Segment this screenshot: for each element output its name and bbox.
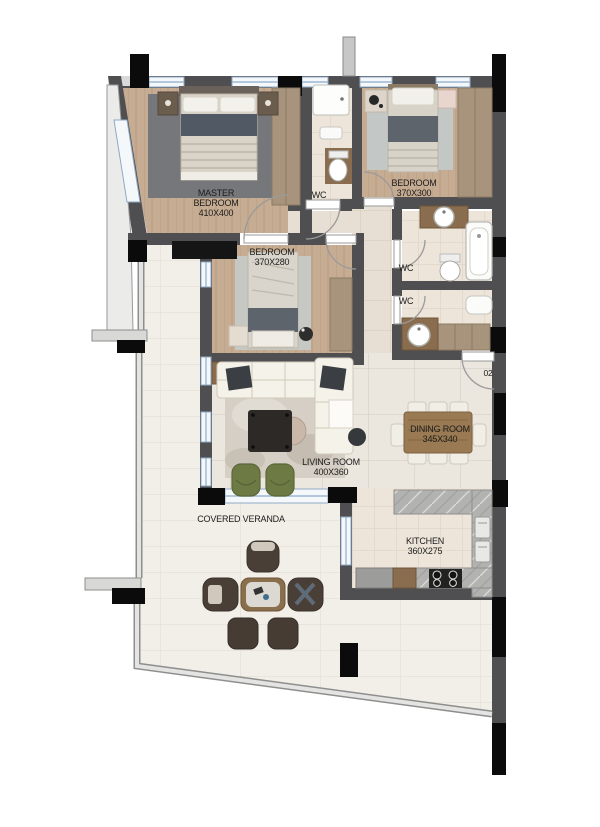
- label-unit-number: 02: [483, 368, 492, 378]
- wall-bath-west-a: [392, 209, 402, 240]
- sofa-pillow-right: [320, 365, 347, 390]
- sink-lower: [408, 324, 430, 346]
- tv-unit-block: [172, 241, 237, 259]
- master-door-leaf: [244, 235, 288, 243]
- wc-shelf: [320, 127, 342, 139]
- floor-lamp: [348, 428, 366, 446]
- label-covered-veranda: COVERED VERANDA: [197, 514, 285, 524]
- entrance-closet: [438, 324, 490, 350]
- bedroom2-door-leaf: [364, 198, 394, 206]
- wall-wc-divider: [402, 281, 492, 290]
- corridor-floor-a: [288, 211, 352, 233]
- wall-bedroom3-east: [352, 245, 364, 365]
- wall-bedroom2-south-a: [352, 197, 364, 209]
- kitchen-cabinet-gray: [356, 568, 393, 588]
- wc-top-door-leaf: [306, 200, 340, 209]
- coffee-table: [248, 410, 292, 452]
- label-wc-top: WC: [312, 190, 327, 200]
- label-kitchen: KITCHEN 360X275: [406, 536, 444, 556]
- label-master-bedroom: MASTER BEDROOM 410X400: [184, 188, 248, 218]
- party-wall-stub: [343, 37, 355, 76]
- stove: [429, 569, 462, 588]
- floor-plan-page: MASTER BEDROOM 410X400 WC BEDROOM 370X30…: [0, 0, 600, 827]
- entrance-door-leaf: [462, 352, 494, 361]
- wall-master-east: [300, 88, 312, 233]
- sofa-tray-table: [329, 400, 353, 428]
- toilet-top: [329, 159, 347, 181]
- label-living-room: LIVING ROOM 400X360: [302, 457, 360, 477]
- wall-wc-top-south-b: [340, 199, 352, 211]
- floor-plan-canvas: [0, 0, 600, 827]
- wall-hall-south: [392, 350, 462, 360]
- sink-upper: [434, 207, 454, 227]
- shower-tray: [313, 85, 349, 115]
- sofa-pillow-left: [226, 365, 253, 390]
- label-wc-middle: WC: [399, 263, 414, 273]
- wall-north-mid2: [356, 233, 364, 245]
- bedroom3-door-leaf: [326, 235, 356, 243]
- kitchen-cabinet-wood: [393, 568, 416, 588]
- wall-wc-top-east: [352, 88, 362, 209]
- label-wc-lower: WC: [399, 296, 414, 306]
- wc-lower-fixture: [466, 296, 492, 314]
- bedroom3-wardrobe: [330, 278, 352, 351]
- wall-bath-west-c: [392, 324, 402, 350]
- label-bedroom2: BEDROOM 370X300: [391, 178, 436, 198]
- label-dining-room: DINING ROOM 345X340: [410, 424, 470, 444]
- wall-kitchen-south: [340, 588, 492, 600]
- label-bedroom3: BEDROOM 370X280: [249, 247, 294, 267]
- toilet-middle: [440, 261, 460, 281]
